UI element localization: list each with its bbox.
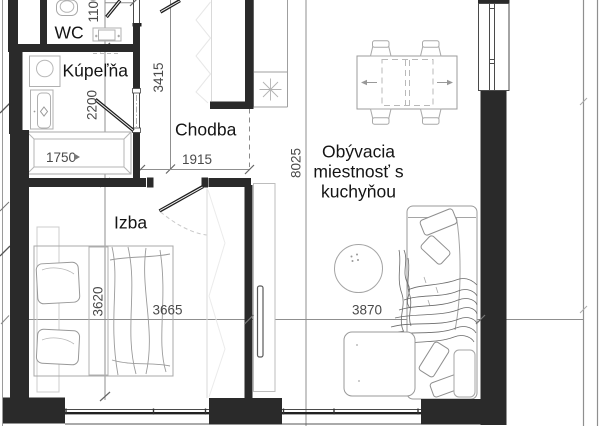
svg-text:Izba: Izba <box>114 213 147 233</box>
svg-text:miestnosť s: miestnosť s <box>313 162 403 182</box>
svg-text:kuchyňou: kuchyňou <box>321 182 396 202</box>
svg-text:8025: 8025 <box>289 148 304 178</box>
svg-text:Kúpeľňa: Kúpeľňa <box>63 61 129 81</box>
svg-text:2200: 2200 <box>85 90 100 120</box>
svg-text:1750: 1750 <box>46 150 76 165</box>
svg-text:1915: 1915 <box>182 152 212 167</box>
svg-text:3870: 3870 <box>352 303 382 318</box>
svg-text:Obývacia: Obývacia <box>322 142 395 162</box>
svg-text:3620: 3620 <box>91 286 106 316</box>
svg-text:3665: 3665 <box>153 303 183 318</box>
svg-text:3415: 3415 <box>151 62 166 92</box>
svg-text:Chodba: Chodba <box>175 120 237 140</box>
svg-text:WC: WC <box>55 23 84 43</box>
svg-text:1100: 1100 <box>86 0 101 23</box>
